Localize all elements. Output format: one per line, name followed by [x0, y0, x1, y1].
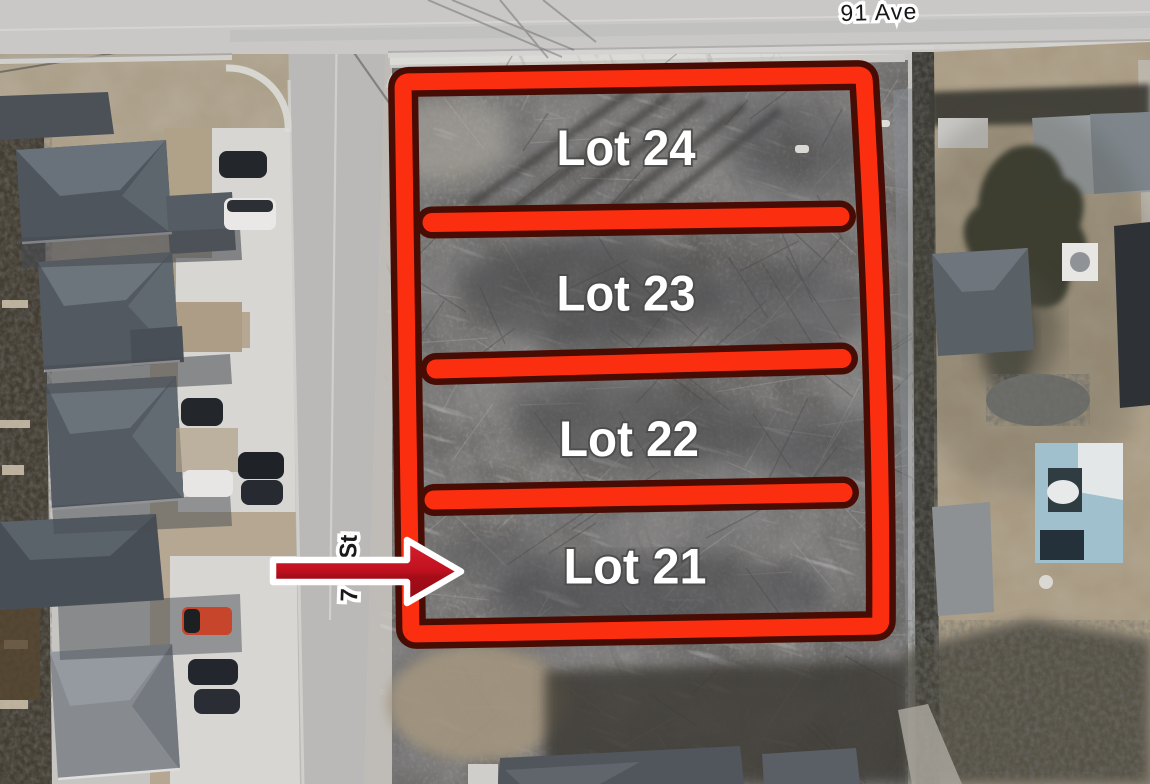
svg-text:Lot 23: Lot 23: [557, 266, 696, 322]
svg-text:7: 7: [336, 588, 363, 602]
svg-text:St: St: [335, 534, 363, 559]
svg-text:Lot 22: Lot 22: [559, 411, 699, 467]
svg-text:Lot 24: Lot 24: [557, 120, 696, 176]
svg-text:91 Ave: 91 Ave: [840, 0, 918, 26]
svg-text:Lot 21: Lot 21: [564, 539, 707, 595]
